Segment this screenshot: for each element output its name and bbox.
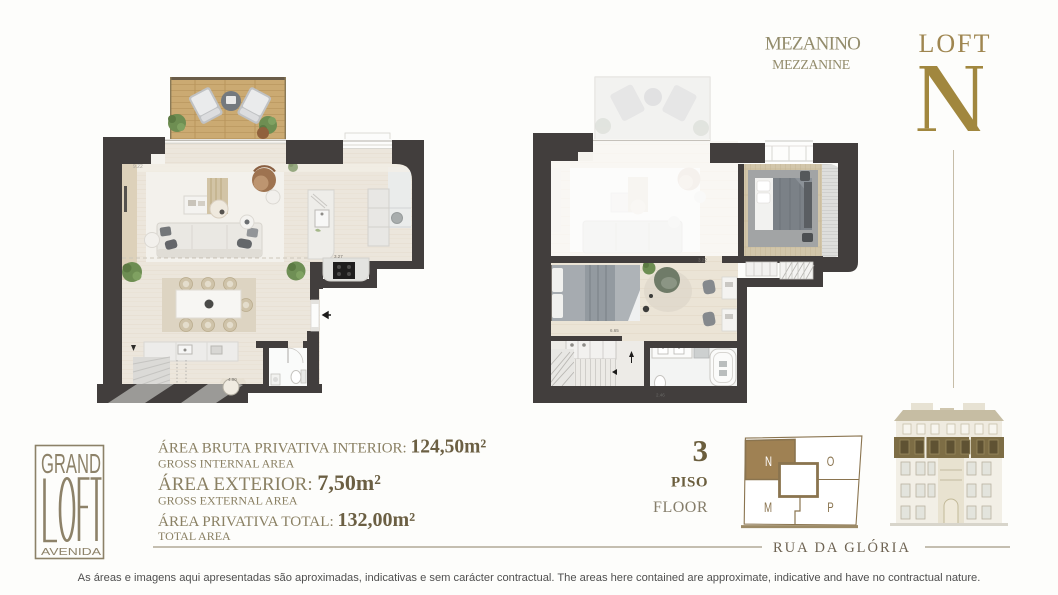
svg-text:N: N bbox=[765, 455, 772, 470]
svg-text:FLOOR: FLOOR bbox=[653, 499, 708, 516]
svg-text:MEZANINO: MEZANINO bbox=[765, 34, 860, 55]
svg-text:PISO: PISO bbox=[671, 475, 708, 491]
svg-text:GROSS EXTERNAL AREA: GROSS EXTERNAL AREA bbox=[158, 494, 298, 508]
svg-text:ÁREA EXTERIOR: 7,50m²: ÁREA EXTERIOR: 7,50m² bbox=[158, 470, 381, 495]
svg-text:GRAND: GRAND bbox=[41, 448, 101, 479]
svg-text:RUA DA GLÓRIA: RUA DA GLÓRIA bbox=[773, 539, 911, 556]
svg-text:LOFT: LOFT bbox=[919, 29, 992, 58]
svg-text:M: M bbox=[764, 501, 772, 516]
svg-text:6.65: 6.65 bbox=[610, 328, 619, 333]
svg-text:GROSS INTERNAL AREA: GROSS INTERNAL AREA bbox=[158, 457, 295, 471]
svg-text:P: P bbox=[827, 501, 834, 516]
svg-text:AVENIDA: AVENIDA bbox=[41, 546, 101, 558]
svg-text:2.46: 2.46 bbox=[656, 393, 665, 398]
svg-text:O: O bbox=[827, 455, 835, 470]
svg-text:TOTAL AREA: TOTAL AREA bbox=[158, 529, 231, 543]
svg-text:ÁREA BRUTA PRIVATIVA INTERIOR:: ÁREA BRUTA PRIVATIVA INTERIOR: 124,50m² bbox=[158, 437, 486, 458]
svg-text:3.27: 3.27 bbox=[334, 254, 343, 259]
svg-text:MEZZANINE: MEZZANINE bbox=[772, 57, 850, 72]
svg-text:3: 3 bbox=[693, 433, 709, 468]
svg-text:3.22: 3.22 bbox=[698, 258, 707, 263]
svg-text:ÁREA PRIVATIVA TOTAL: 132,00m²: ÁREA PRIVATIVA TOTAL: 132,00m² bbox=[158, 509, 415, 531]
svg-text:4.00: 4.00 bbox=[228, 377, 237, 382]
svg-text:As áreas e imagens aqui aprese: As áreas e imagens aqui apresentadas são… bbox=[78, 572, 981, 584]
svg-text:9.22: 9.22 bbox=[133, 164, 143, 170]
